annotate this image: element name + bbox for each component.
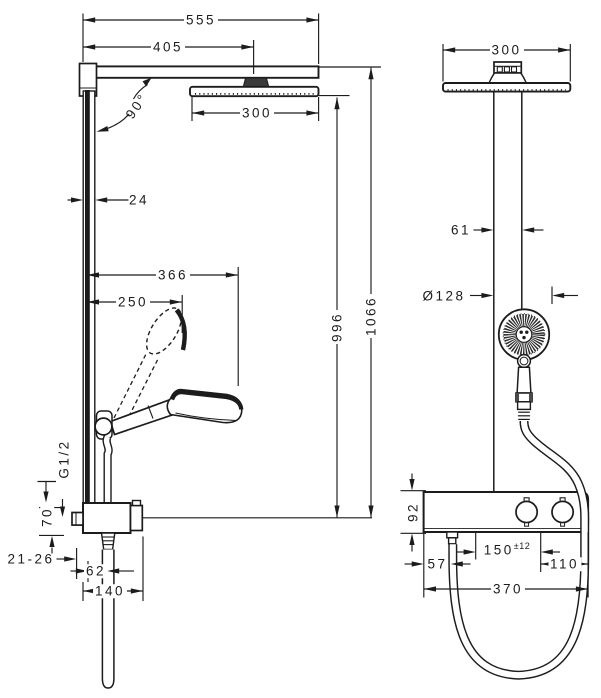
overhead-spray-plate-front (443, 83, 570, 92)
dim-wall-thickness-range: 21-26 (7, 552, 54, 566)
dim-max-reach: 366 (156, 268, 190, 282)
dim-valve-body-height: 92 (406, 501, 420, 521)
dim-overall-height: 1066 (364, 294, 378, 338)
handshower-solid (111, 390, 242, 435)
ceiling-connector (489, 62, 526, 83)
shower-hose-upper (107, 437, 109, 505)
dim-pipe-offset: 61 (451, 223, 471, 237)
riser-pipe (494, 92, 522, 492)
dim-handshower-diameter: Ø128 (420, 289, 467, 303)
dim-headspray-width-side: 300 (240, 106, 274, 120)
handshower-front (499, 309, 549, 419)
dim-headspray-width-front: 300 (489, 43, 523, 57)
overhead-shower-arm (81, 66, 319, 77)
dim-valve-body-width: 370 (491, 582, 525, 596)
dim-total-width: 555 (184, 13, 218, 27)
dim-supply-spacing: 150±12 (482, 543, 532, 557)
dim-height-to-headspray: 996 (330, 310, 344, 344)
dim-valve-depth: 140 (93, 584, 127, 598)
arm-plate-connector (243, 78, 268, 87)
dim-supply-left-offset: 57 (427, 557, 447, 571)
wall-profile-bar (80, 64, 97, 504)
dim-supply-spacing-value: 150 (484, 542, 514, 557)
dim-hose-outlet-offset: 62 (84, 564, 108, 578)
thermostat-valve-front (424, 492, 588, 544)
dim-profile-depth: 24 (129, 193, 149, 207)
dim-thread-size: G1/2 (57, 439, 71, 478)
dim-arm-projection: 405 (151, 40, 185, 54)
technical-drawing-canvas: 555 405 300 90° 24 366 250 G1/2 70 21-26… (0, 0, 601, 698)
dim-inlet-offset: 70 (40, 505, 54, 529)
overhead-spray-plate (190, 87, 319, 96)
thermostat-valve-side (72, 501, 142, 534)
handshower-holder (95, 411, 112, 439)
dim-outlet-right-offset: 110 (548, 557, 581, 571)
dim-handshower-reach: 250 (116, 295, 150, 309)
shower-hose-lower (102, 533, 115, 688)
dim-supply-spacing-tolerance: ±12 (514, 541, 530, 551)
